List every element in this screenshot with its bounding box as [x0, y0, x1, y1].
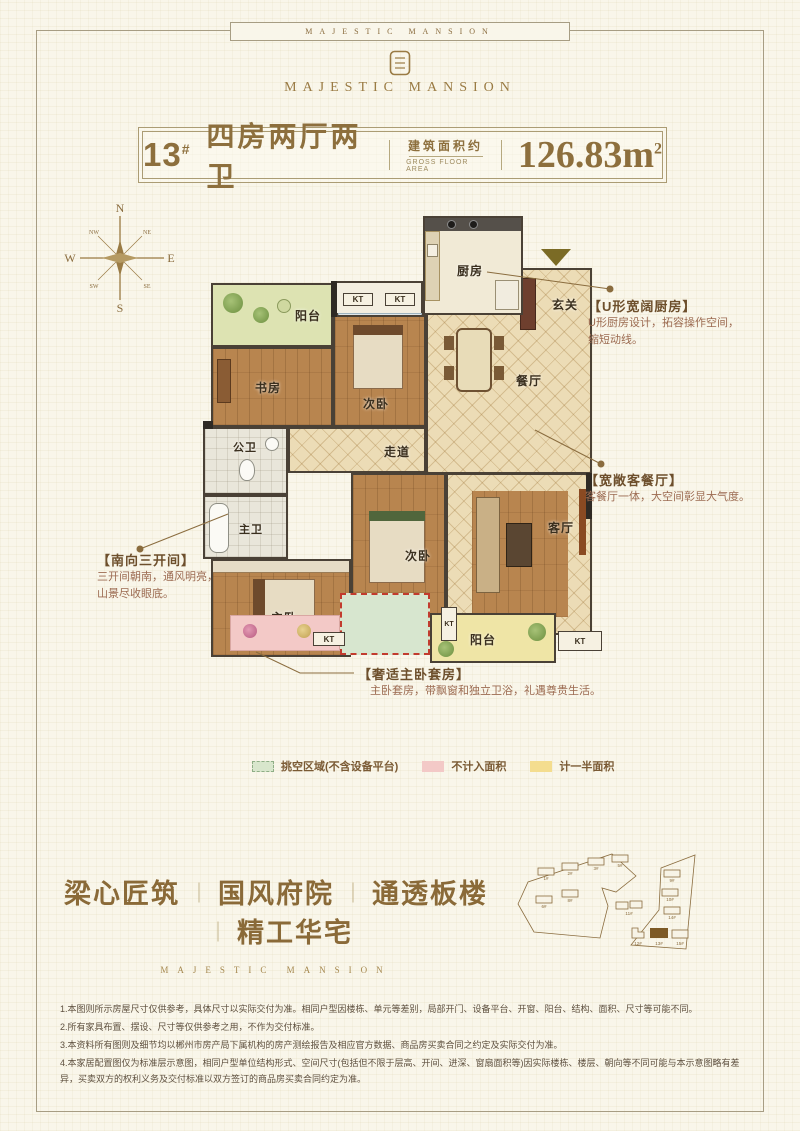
wall-segment — [331, 281, 337, 317]
legend: 挑空区域(不含设备平台) 不计入面积 计一半面积 — [252, 758, 614, 774]
slogan-block: 梁心匠筑｜国风府院｜通透板楼｜精工华宅 MAJESTIC MANSION — [62, 872, 490, 975]
site-building-label: 5# — [617, 863, 623, 868]
dining-chair-icon — [494, 336, 504, 350]
room-label-master-bath: 主卫 — [239, 521, 263, 537]
brand-seal-icon — [389, 50, 411, 81]
stove-burner-icon — [447, 220, 456, 229]
site-building-label: 14# — [668, 915, 676, 920]
site-building — [630, 901, 642, 908]
coffee-table-icon — [506, 523, 532, 567]
legend-label-half: 计一半面积 — [559, 758, 614, 774]
wall-segment — [203, 421, 213, 429]
compass-sw: SW — [90, 284, 99, 290]
disclaimer-line-4: 4.本家居配置图仅为标准层示意图，相同户型单位结构形式、空间尺寸(包括但不限于层… — [60, 1055, 748, 1087]
slogan-line: 梁心匠筑｜国风府院｜通透板楼｜精工华宅 — [62, 872, 490, 950]
room-public-bath: 公卫 — [203, 427, 288, 495]
plant-icon — [528, 623, 546, 641]
room-label-living: 客厅 — [548, 519, 574, 536]
callout-kitchen: 【U形宽阔厨房】 U形厨房设计，拓容操作空间， 缩短动线。 — [588, 296, 760, 349]
room-corridor: 走道 — [288, 427, 426, 473]
compass-e: E — [167, 251, 174, 265]
slogan-item-4: 精工华宅 — [237, 918, 353, 948]
compass-nw: NW — [89, 230, 99, 236]
site-building-label: 2# — [567, 871, 573, 876]
room-label-balcony-top: 阳台 — [295, 307, 321, 324]
disclaimer-line-1: 1.本图则所示房屋尺寸仅供参考，具体尺寸以实际交付为准。相同户型因楼栋、单元等差… — [60, 1001, 748, 1017]
site-building-label: 8# — [567, 898, 573, 903]
slogan-item-1: 梁心匠筑 — [64, 879, 180, 909]
room-label-corridor: 走道 — [384, 443, 410, 460]
plant-icon — [223, 293, 243, 313]
compass-s: S — [117, 301, 124, 315]
disclaimer-line-2: 2.所有家具布置、摆设、尺寸等仅供参考之用，不作为交付标准。 — [60, 1019, 748, 1035]
compass-ne: NE — [143, 230, 151, 236]
legend-label-excluded: 不计入面积 — [451, 758, 506, 774]
disclaimer-line-3: 3.本资料所有图则及细节均以郴州市房产局下属机构的房产测绘报告及相应官方数据、商… — [60, 1037, 748, 1053]
site-building — [536, 896, 552, 903]
site-building-label: 11# — [625, 911, 633, 916]
frame-brand-title: MAJESTIC MANSION — [230, 22, 570, 41]
callout-south: 【南向三开间】 三开间朝南，通风明亮， 山景尽收眼底。 — [97, 550, 252, 603]
callout-master-line1: 主卧套房，带飘窗和独立卫浴，礼遇尊贵生活。 — [370, 683, 698, 700]
compass-w: W — [64, 251, 76, 265]
unit-number: 13# — [143, 136, 191, 174]
brochure-page: MAJESTIC MANSION MAJESTIC MANSION 13# 四房… — [0, 0, 800, 1131]
slogan-divider: ｜ — [189, 883, 209, 905]
bathtub-icon — [209, 503, 229, 553]
room-kitchen: 厨房 — [423, 216, 523, 315]
title-divider — [389, 140, 390, 170]
fridge-icon — [495, 280, 519, 310]
callout-living-line1: 客餐厅一体，大空间彰显大气度。 — [585, 489, 765, 506]
site-plan-map: 1# 2# 3# 5# 6# 8# 11# 9# 10# 14# 12# 13#… — [512, 846, 750, 973]
kt-label: KT — [343, 293, 373, 306]
room-label-study: 书房 — [255, 379, 281, 396]
callout-living: 【宽敞客餐厅】 客餐厅一体，大空间彰显大气度。 — [585, 470, 765, 506]
unit-title-bar: 13# 四房两厅两卫 建筑面积约 GROSS FLOOR AREA 126.83… — [138, 127, 667, 183]
room-label-public-bath: 公卫 — [233, 439, 257, 455]
room-bedroom2: 次卧 — [333, 315, 426, 427]
bed-headboard-icon — [369, 511, 425, 521]
callout-kitchen-line1: U形厨房设计，拓容操作空间， — [588, 315, 760, 332]
site-building — [562, 863, 578, 870]
site-building — [588, 858, 604, 865]
site-building-label: 15# — [676, 941, 684, 946]
site-building-label: 9# — [669, 878, 675, 883]
slogan-divider: ｜ — [343, 883, 363, 905]
slogan-item-2: 国风府院 — [218, 879, 334, 909]
kt-label: KT — [313, 632, 345, 646]
sofa-icon — [476, 497, 500, 593]
room-label-bedroom3: 次卧 — [405, 547, 431, 564]
bed-headboard-icon — [353, 325, 403, 335]
washbasin-icon — [265, 437, 279, 451]
room-label-balcony-bottom: 阳台 — [470, 631, 496, 648]
legend-swatch-excluded — [422, 761, 444, 772]
legend-swatch-void — [252, 761, 274, 772]
area-label-en: GROSS FLOOR AREA — [406, 159, 485, 173]
kitchen-counter-icon — [425, 231, 440, 301]
site-building — [664, 907, 680, 914]
unit-number-hash: # — [182, 141, 191, 157]
site-building — [664, 870, 680, 877]
dining-chair-icon — [494, 366, 504, 380]
kt-label: KT — [441, 607, 457, 641]
unit-layout-name: 四房两厅两卫 — [207, 115, 374, 195]
room-label-dining: 餐厅 — [516, 372, 542, 389]
room-balcony-top: 阳台 — [211, 283, 333, 347]
area-label-cn: 建筑面积约 — [408, 137, 483, 154]
site-building-lshape — [632, 928, 644, 938]
site-building-label: 6# — [541, 904, 547, 909]
slogan-sub-brand: MAJESTIC MANSION — [62, 965, 490, 975]
slogan-divider: ｜ — [208, 922, 228, 944]
site-building-label: 10# — [666, 897, 674, 902]
site-building-label: 13# — [655, 941, 663, 946]
site-building-highlighted — [650, 928, 668, 938]
plant-icon — [253, 307, 269, 323]
floor-plan: 玄关 餐厅 厨房 KT KT 阳台 — [198, 213, 612, 665]
callout-kitchen-line2: 缩短动线。 — [588, 332, 760, 349]
room-living: 客厅 — [446, 473, 592, 635]
room-label-kitchen: 厨房 — [457, 262, 483, 279]
kt-label: KT — [385, 293, 415, 306]
area-unit-sup: 2 — [654, 140, 662, 157]
site-building-label: 1# — [543, 876, 549, 881]
slogan-item-3: 通透板楼 — [372, 879, 488, 909]
kt-label: KT — [558, 631, 602, 651]
title-divider — [501, 140, 502, 170]
sink-icon — [427, 244, 438, 257]
site-building — [616, 902, 628, 909]
stove-burner-icon — [469, 220, 478, 229]
site-building — [538, 868, 554, 875]
compass-rose-icon: N S E W NW NE SW SE — [62, 200, 178, 321]
decor-icon — [243, 624, 257, 638]
frame-brand-text: MAJESTIC MANSION — [305, 27, 495, 36]
site-building — [562, 890, 578, 897]
site-building-label: 12# — [634, 941, 642, 946]
site-building — [672, 930, 688, 938]
callout-living-title: 【宽敞客餐厅】 — [585, 470, 765, 489]
site-building-label: 3# — [593, 866, 599, 871]
legend-label-void: 挑空区域(不含设备平台) — [281, 758, 398, 774]
callout-master-title: 【奢适主卧套房】 — [358, 664, 698, 683]
area-label-rule — [409, 156, 483, 157]
room-study: 书房 — [211, 347, 333, 427]
callout-kitchen-title: 【U形宽阔厨房】 — [588, 296, 760, 315]
area-value: 126.83m2 — [518, 133, 662, 177]
area-label-block: 建筑面积约 GROSS FLOOR AREA — [406, 137, 485, 173]
compass-se: SE — [143, 284, 150, 290]
callout-south-line1: 三开间朝南，通风明亮， — [97, 569, 252, 586]
ac-platform-top: KT KT — [333, 281, 423, 315]
room-label-bedroom2: 次卧 — [363, 395, 389, 412]
decor-icon — [297, 624, 311, 638]
unit-title-inner: 13# 四房两厅两卫 建筑面积约 GROSS FLOOR AREA 126.83… — [142, 131, 663, 179]
brand-logo-text: MAJESTIC MANSION — [0, 80, 800, 96]
balcony-table-icon — [277, 299, 291, 313]
site-building — [662, 889, 678, 896]
callout-south-title: 【南向三开间】 — [97, 550, 252, 569]
plant-icon — [438, 641, 454, 657]
callout-south-line2: 山景尽收眼底。 — [97, 586, 252, 603]
toilet-icon — [239, 459, 255, 481]
disclaimer-block: 1.本图则所示房屋尺寸仅供参考，具体尺寸以实际交付为准。相同户型因楼栋、单元等差… — [60, 1001, 748, 1089]
desk-icon — [217, 359, 231, 403]
void-area — [340, 593, 430, 655]
dining-table-icon — [456, 328, 492, 392]
dining-chair-icon — [444, 336, 454, 350]
callout-master: 【奢适主卧套房】 主卧套房，带飘窗和独立卫浴，礼遇尊贵生活。 — [358, 664, 698, 700]
entrance-arrow-icon — [541, 249, 571, 266]
dining-chair-icon — [444, 366, 454, 380]
site-building — [612, 855, 628, 862]
legend-swatch-half — [530, 761, 552, 772]
room-label-foyer: 玄关 — [552, 296, 578, 313]
compass-n: N — [116, 201, 125, 215]
